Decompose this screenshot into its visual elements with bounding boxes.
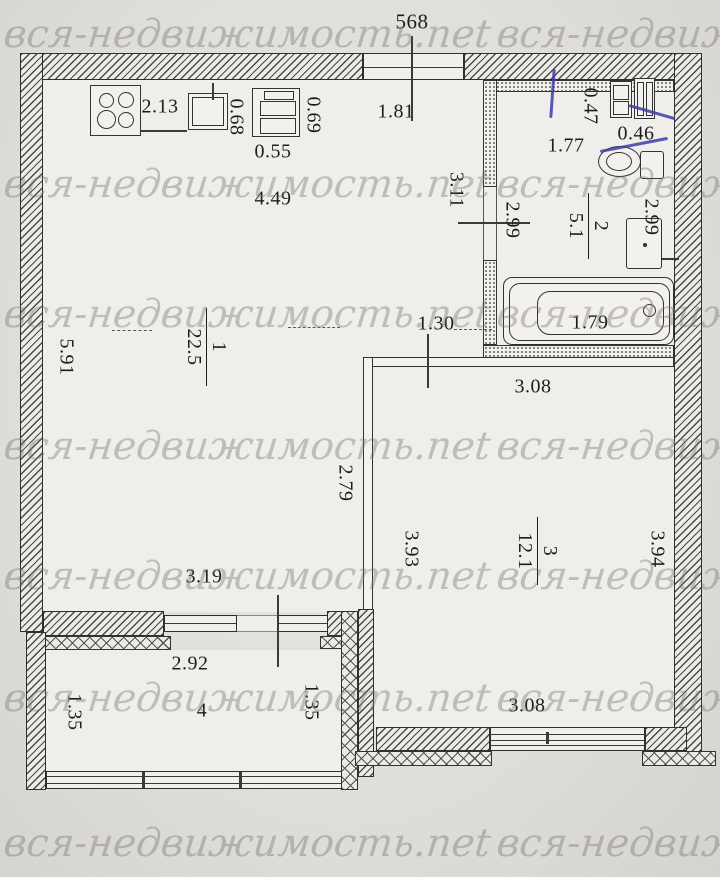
room1-dim-dash-left: [112, 330, 152, 331]
room3-area: 12.1: [514, 533, 537, 570]
room3-label: 3 12.1: [514, 517, 560, 585]
stove-burner-icon: [118, 92, 134, 108]
bath-cabinet-door-icon: [637, 82, 644, 116]
passage-dim-leader: [427, 334, 429, 388]
balcony-bottom-window: [46, 771, 342, 789]
room3-bottom-window-frame2: [491, 740, 644, 741]
sink-dim-tick: [212, 83, 214, 100]
kitchen-sink-icon: [188, 93, 228, 130]
bathroom-sink-dim-tick: [662, 258, 679, 260]
stove-burner-icon: [118, 112, 134, 128]
floor-plan-scan: 568 2.13 0.55 1.81 4.49 1.77 0.46 1.79 1…: [0, 0, 720, 877]
bathroom-door-opening: [483, 187, 497, 260]
toilet-tank-icon: [640, 151, 664, 179]
balcony-top-wall-left: [43, 611, 164, 636]
room1-area: 22.5: [183, 329, 206, 366]
balcony-window-right-frame: [279, 623, 327, 624]
dim-top-window: 1.81: [378, 101, 415, 124]
bathroom-left-wall-upper: [483, 80, 497, 187]
balcony-door-leaf-line: [277, 595, 279, 667]
room3-bottom-wall-right: [645, 727, 687, 751]
washing-machine-panel-icon: [613, 85, 629, 100]
dim-room3-top-width: 3.08: [515, 376, 552, 399]
balcony-window-left: [164, 615, 237, 632]
dim-balcony-width: 2.92: [172, 653, 209, 676]
dim-washer: 0.47: [579, 88, 602, 125]
room2-number: 2: [588, 193, 611, 259]
room3-bottom-window-frame3: [491, 745, 644, 746]
dim-partition: 2.79: [334, 465, 357, 502]
dim-stove: 2.13: [142, 96, 179, 119]
balcony-bottom-window-frame2: [47, 783, 341, 784]
kitchen-cabinet-top-icon: [264, 91, 294, 100]
room3-bottom-wall-left: [376, 727, 490, 751]
top-window: [363, 53, 464, 80]
watermark-text: вся-недвижимость.net: [2, 821, 493, 866]
washing-machine-panel-icon: [613, 101, 629, 115]
stove-dim-line: [140, 130, 187, 132]
balcony-window-right: [278, 615, 328, 632]
outer-wall-top-left: [20, 53, 363, 80]
room1-dim-dash-right: [288, 327, 340, 328]
watermark-text: вся-недвиж: [495, 12, 720, 57]
dim-room3-right-depth: 3.94: [646, 531, 669, 568]
balcony-door-opening: [237, 615, 278, 632]
partition-room1-room3: [363, 357, 373, 612]
dim-cabinet-depth: 0.55: [255, 141, 292, 164]
bathroom-sink-drain-icon: [643, 243, 647, 247]
dim-overall-top: 568: [396, 10, 429, 35]
washing-machine-icon: [610, 81, 632, 118]
room1-label: 1 22.5: [183, 308, 229, 386]
room2-label: 2 5.1: [565, 193, 611, 259]
bathtub-drain-icon: [643, 304, 656, 317]
room3-number: 3: [537, 517, 560, 585]
passage-dim-dash: [454, 329, 492, 330]
room4-number: 4: [197, 700, 208, 723]
outer-wall-left: [20, 53, 43, 632]
dim-balcony-right-depth: 1.35: [300, 684, 323, 721]
dim-sink: 0.68: [225, 99, 248, 136]
dim-bath-width: 1.77: [548, 135, 585, 158]
outer-wall-top-right: [464, 53, 702, 80]
dim-passage: 1.30: [418, 313, 455, 336]
dim-room3-bottom-width: 3.08: [509, 695, 546, 718]
room2-area: 5.1: [565, 213, 588, 240]
kitchen-cabinet-shelf-icon: [260, 101, 296, 116]
bathroom-left-wall-lower: [483, 260, 497, 345]
kitchen-cabinet-icon: [252, 88, 300, 137]
dim-balcony-left-depth: 1.35: [63, 694, 86, 731]
stove-burner-icon: [97, 110, 116, 129]
dim-room1-width: 4.49: [255, 188, 292, 211]
balcony-window-left-frame: [165, 623, 236, 624]
stove-icon: [90, 85, 141, 136]
kitchen-sink-basin-icon: [192, 97, 224, 126]
dim-room1-bottom-width: 3.19: [186, 566, 223, 589]
stove-burner-icon: [99, 93, 114, 108]
balcony-top-wall-insulation-left: [43, 636, 171, 650]
dim-cabinet-width: 0.69: [302, 97, 325, 134]
room3-bottom-window: [490, 727, 645, 751]
balcony-bottom-window-mullion1: [142, 772, 145, 788]
kitchen-cabinet-shelf-icon: [260, 118, 296, 134]
balcony-bottom-window-mullion2: [239, 772, 242, 788]
room3-bottom-window-mullion: [546, 732, 549, 744]
toilet-bowl-inner-icon: [606, 152, 632, 171]
room3-bottom-window-frame1: [491, 734, 644, 735]
partition-room3-top: [363, 357, 674, 367]
balcony-bottom-window-frame1: [47, 776, 341, 777]
dim-corridor: 3.11: [445, 172, 468, 208]
dim-bath-left-depth: 2.99: [501, 202, 524, 239]
dim-room1-depth: 5.91: [55, 339, 78, 376]
room3-bottom-insulation-right: [642, 751, 716, 766]
room3-bottom-insulation-left: [355, 751, 492, 766]
dim-bathtub: 1.79: [572, 312, 609, 335]
top-window-frame-line: [364, 67, 463, 68]
room1-number: 1: [206, 308, 229, 386]
outer-wall-right: [674, 53, 702, 752]
dim-bath-right-depth: 2.99: [640, 199, 663, 236]
dim-room3-left-depth: 3.93: [400, 531, 423, 568]
watermark-text: вся-недвиж: [495, 821, 720, 866]
balcony-left-wall: [26, 632, 46, 790]
